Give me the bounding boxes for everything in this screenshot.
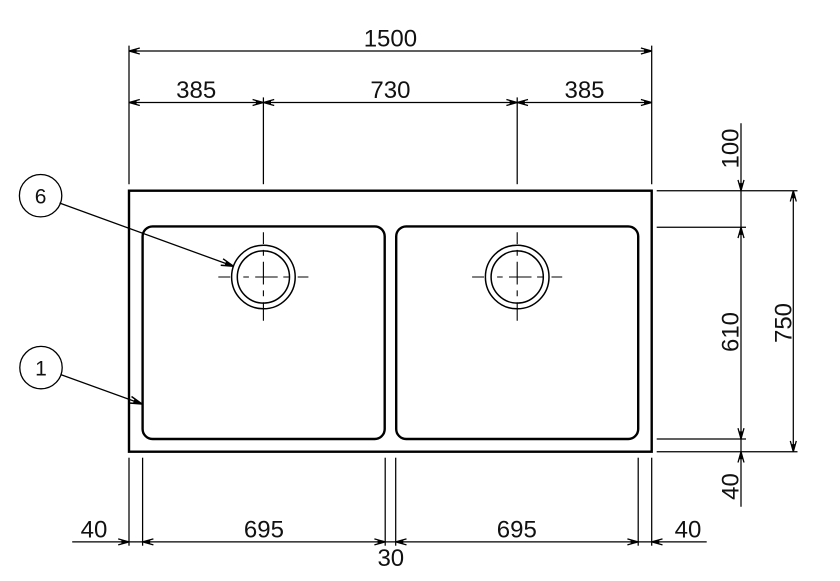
svg-text:1500: 1500 [364, 25, 417, 52]
svg-text:40: 40 [718, 473, 745, 500]
svg-text:30: 30 [377, 545, 404, 572]
svg-text:750: 750 [771, 303, 798, 343]
svg-text:1: 1 [35, 357, 47, 380]
svg-text:6: 6 [35, 185, 47, 208]
svg-text:730: 730 [370, 77, 410, 104]
svg-text:695: 695 [244, 517, 284, 544]
svg-text:695: 695 [497, 517, 537, 544]
svg-text:610: 610 [718, 312, 745, 352]
svg-text:40: 40 [675, 517, 702, 544]
svg-text:100: 100 [718, 128, 745, 168]
svg-text:40: 40 [81, 517, 108, 544]
svg-text:385: 385 [176, 77, 216, 104]
svg-text:385: 385 [564, 77, 604, 104]
